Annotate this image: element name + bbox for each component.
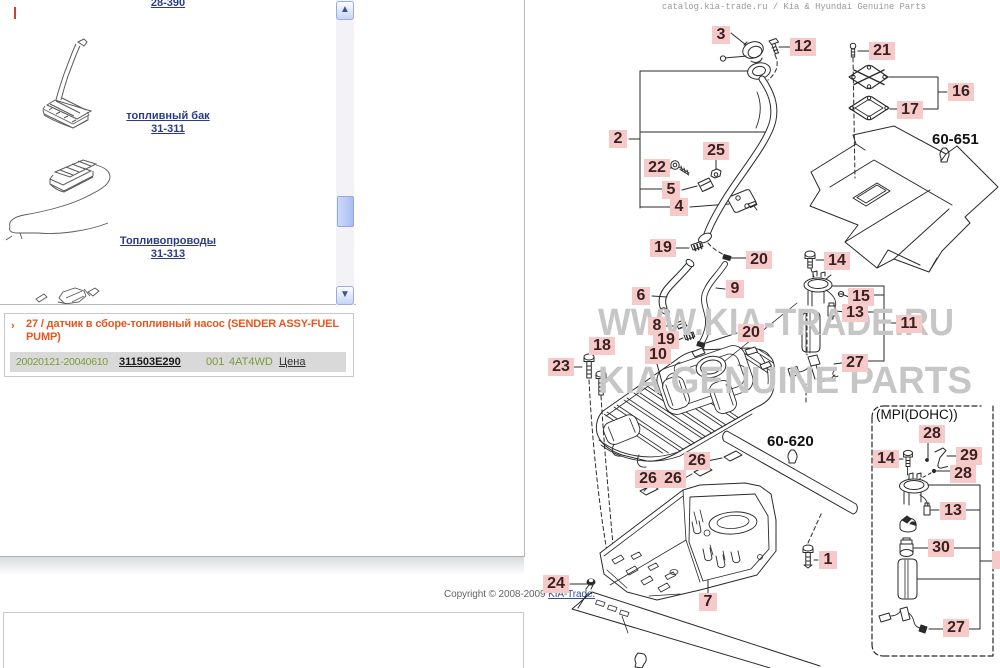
svg-text:60-620: 60-620 [767,433,814,450]
svg-text:(MPI(DOHC)): (MPI(DOHC)) [876,407,958,422]
svg-text:KIA GENUINE PARTS: KIA GENUINE PARTS [598,360,972,402]
svg-text:60-651: 60-651 [932,131,979,148]
